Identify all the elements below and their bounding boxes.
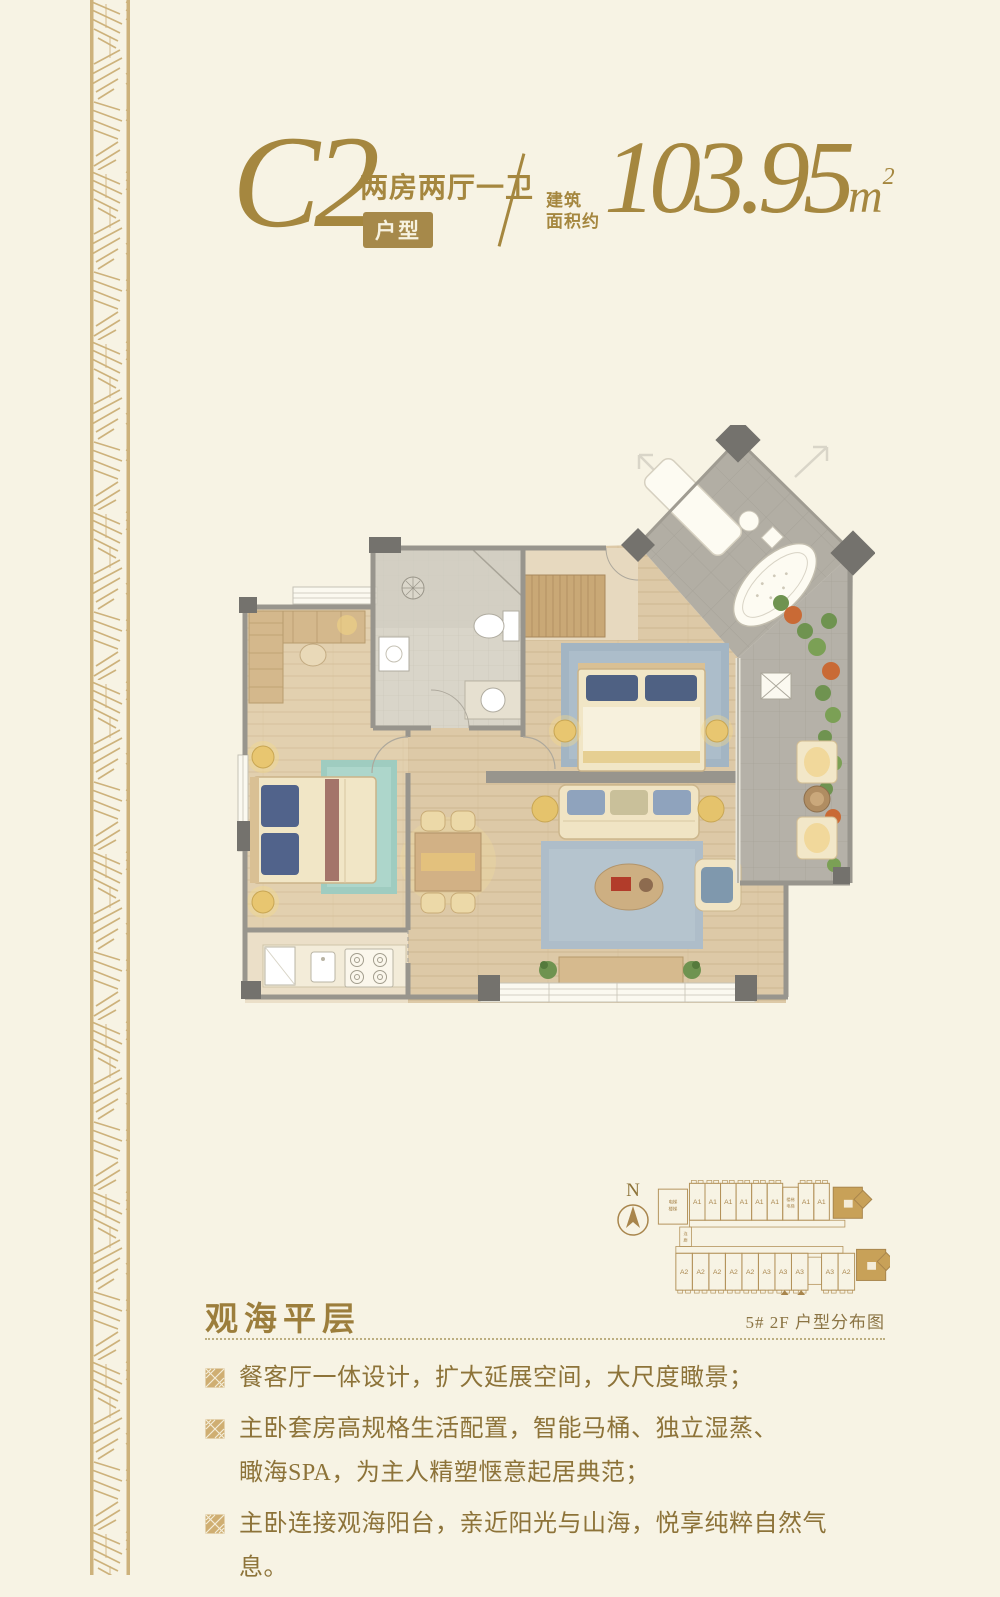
unit-label: A3 xyxy=(763,1269,772,1276)
partition-wall xyxy=(486,771,740,783)
recess-box xyxy=(808,1257,822,1284)
compass-needle xyxy=(626,1206,640,1228)
list-item: 主卧连接观海阳台，亲近阳光与山海，悦享纯粹自然气息。 xyxy=(205,1502,870,1590)
corridor-label: 连 xyxy=(684,1230,688,1236)
plan-code: C2 xyxy=(232,116,374,248)
unit-label: A1 xyxy=(802,1199,811,1206)
sofa-side-table-right xyxy=(698,796,724,822)
area-label: 建筑 面积约 xyxy=(546,190,600,232)
unit-label: A3 xyxy=(796,1269,805,1276)
coffee-table xyxy=(595,864,663,910)
ornament-bullet-icon xyxy=(205,1419,225,1439)
floor-plan xyxy=(233,425,875,1008)
master-bed xyxy=(578,663,705,771)
unit-label: A1 xyxy=(817,1199,826,1206)
header: C2 两房两厅一卫 户型 建筑 面积约 103.95m2 xyxy=(232,130,892,270)
huxing-badge: 户型 xyxy=(363,212,433,248)
stair-label: 电梯 xyxy=(786,1203,794,1209)
balcony-table-top xyxy=(810,792,824,806)
unit-label: A2 xyxy=(746,1269,755,1276)
unit-label: A1 xyxy=(724,1199,733,1206)
border-edge-left xyxy=(90,0,94,1575)
border-edge-right xyxy=(127,0,131,1575)
wardrobe xyxy=(525,575,605,637)
south-bay-window xyxy=(480,983,755,1002)
list-item: 主卧套房高规格生活配置，智能马桶、独立湿蒸、 瞰海SPA，为主人精塑惬意起居典范… xyxy=(205,1407,870,1495)
list-item-text: 餐客厅一体设计，扩大延展空间，大尺度瞰景； xyxy=(239,1356,754,1400)
corridor-bar xyxy=(676,1246,843,1253)
elevator-label: 电梯 xyxy=(668,1199,677,1206)
stair-label: 楼梯 xyxy=(786,1196,794,1202)
sofa xyxy=(559,785,699,839)
unit-label: A1 xyxy=(693,1199,702,1206)
unit-label: A2 xyxy=(713,1269,722,1276)
tv-bench xyxy=(539,957,701,983)
compass: N xyxy=(610,1178,656,1244)
unit-label: A1 xyxy=(755,1199,764,1206)
unit-label: A3 xyxy=(826,1269,835,1276)
unit-label: A1 xyxy=(709,1199,718,1206)
section-header: 观海平层 5# 2F 户型分布图 xyxy=(205,1290,885,1340)
unit-label: A3 xyxy=(779,1269,788,1276)
area-exponent: 2 xyxy=(883,164,895,190)
unit-label: A2 xyxy=(696,1269,705,1276)
decorative-border xyxy=(90,0,130,1575)
area-value: 103.95m2 xyxy=(604,108,895,248)
unit-label: A1 xyxy=(771,1199,780,1206)
diagram-caption: 5# 2F 户型分布图 xyxy=(746,1308,885,1338)
elevator-label: 楼梯 xyxy=(668,1206,677,1213)
building-diagram: 电梯楼梯A1A1A1A1A1A1A1A1楼梯电梯连廊A2A2A2A2A2A3A3… xyxy=(656,1160,890,1296)
unit-label: A2 xyxy=(729,1269,738,1276)
unit-label: A2 xyxy=(680,1269,689,1276)
ornament-bullet-icon xyxy=(205,1514,225,1534)
view-arrow-ne xyxy=(795,447,827,477)
corridor-bar xyxy=(689,1220,844,1227)
kitchen-counter xyxy=(263,945,406,987)
layout-type-text: 两房两厅一卫 xyxy=(360,166,534,206)
area-unit: m xyxy=(848,170,883,223)
list-item: 餐客厅一体设计，扩大延展空间，大尺度瞰景； xyxy=(205,1356,870,1400)
balcony-lounge-chair-2 xyxy=(797,817,837,859)
compass-n-label: N xyxy=(626,1180,640,1201)
unit-label: A2 xyxy=(842,1269,851,1276)
feature-list: 餐客厅一体设计，扩大延展空间，大尺度瞰景； 主卧套房高规格生活配置，智能马桶、独… xyxy=(205,1356,870,1597)
border-pattern xyxy=(94,0,127,1575)
north-bay-window xyxy=(293,587,377,604)
sofa-side-table-left xyxy=(532,796,558,822)
ornament-bullet-icon xyxy=(205,1368,225,1388)
planter-box xyxy=(761,673,791,699)
highlight-unit-top-window xyxy=(844,1200,853,1208)
armchair xyxy=(695,859,741,911)
corridor-label: 廊 xyxy=(684,1237,688,1243)
bedroom2-bed xyxy=(250,777,376,883)
list-item-text: 主卧连接观海阳台，亲近阳光与山海，悦享纯粹自然气息。 xyxy=(239,1502,870,1590)
terrace-side-table xyxy=(739,511,759,531)
section-title: 观海平层 xyxy=(205,1302,361,1338)
list-item-text: 主卧套房高规格生活配置，智能马桶、独立湿蒸、 瞰海SPA，为主人精塑惬意起居典范… xyxy=(239,1407,778,1495)
highlight-unit-bottom-window xyxy=(867,1262,876,1270)
balcony-lounge-chair-1 xyxy=(797,741,837,783)
unit-label: A1 xyxy=(740,1199,749,1206)
